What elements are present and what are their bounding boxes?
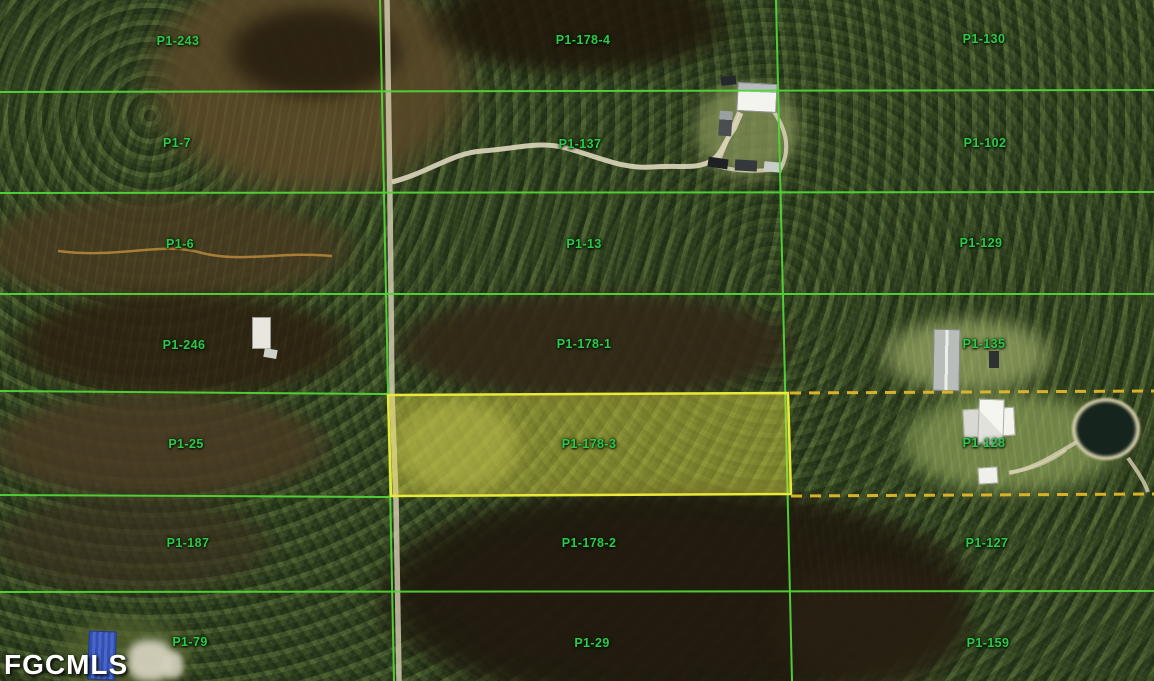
parcel-label-p1-6: P1-6 (166, 237, 194, 251)
parcel-label-p1-137: P1-137 (559, 137, 602, 151)
parcel-label-p1-243: P1-243 (157, 34, 200, 48)
fgcmls-watermark: FGCMLS (4, 649, 128, 681)
parcel-label-p1-128: P1-128 (963, 436, 1006, 450)
parcel-label-p1-178-2: P1-178-2 (562, 536, 617, 550)
parcel-label-p1-178-4: P1-178-4 (556, 33, 611, 47)
parcel-label-p1-135: P1-135 (963, 337, 1006, 351)
parcel-label-p1-246: P1-246 (163, 338, 206, 352)
parcel-labels: P1-243P1-178-4P1-130P1-7P1-137P1-102P1-6… (0, 0, 1154, 681)
parcel-label-p1-127: P1-127 (966, 536, 1009, 550)
parcel-label-p1-7: P1-7 (163, 136, 191, 150)
parcel-label-p1-159: P1-159 (967, 636, 1010, 650)
parcel-label-p1-129: P1-129 (960, 236, 1003, 250)
parcel-label-p1-178-1: P1-178-1 (557, 337, 612, 351)
aerial-parcel-map: P1-243P1-178-4P1-130P1-7P1-137P1-102P1-6… (0, 0, 1154, 681)
parcel-label-p1-187: P1-187 (167, 536, 210, 550)
parcel-label-p1-178-3: P1-178-3 (562, 437, 617, 451)
parcel-label-p1-79: P1-79 (172, 635, 207, 649)
parcel-label-p1-29: P1-29 (574, 636, 609, 650)
parcel-label-p1-13: P1-13 (566, 237, 601, 251)
parcel-label-p1-130: P1-130 (963, 32, 1006, 46)
parcel-label-p1-25: P1-25 (168, 437, 203, 451)
parcel-label-p1-102: P1-102 (964, 136, 1007, 150)
